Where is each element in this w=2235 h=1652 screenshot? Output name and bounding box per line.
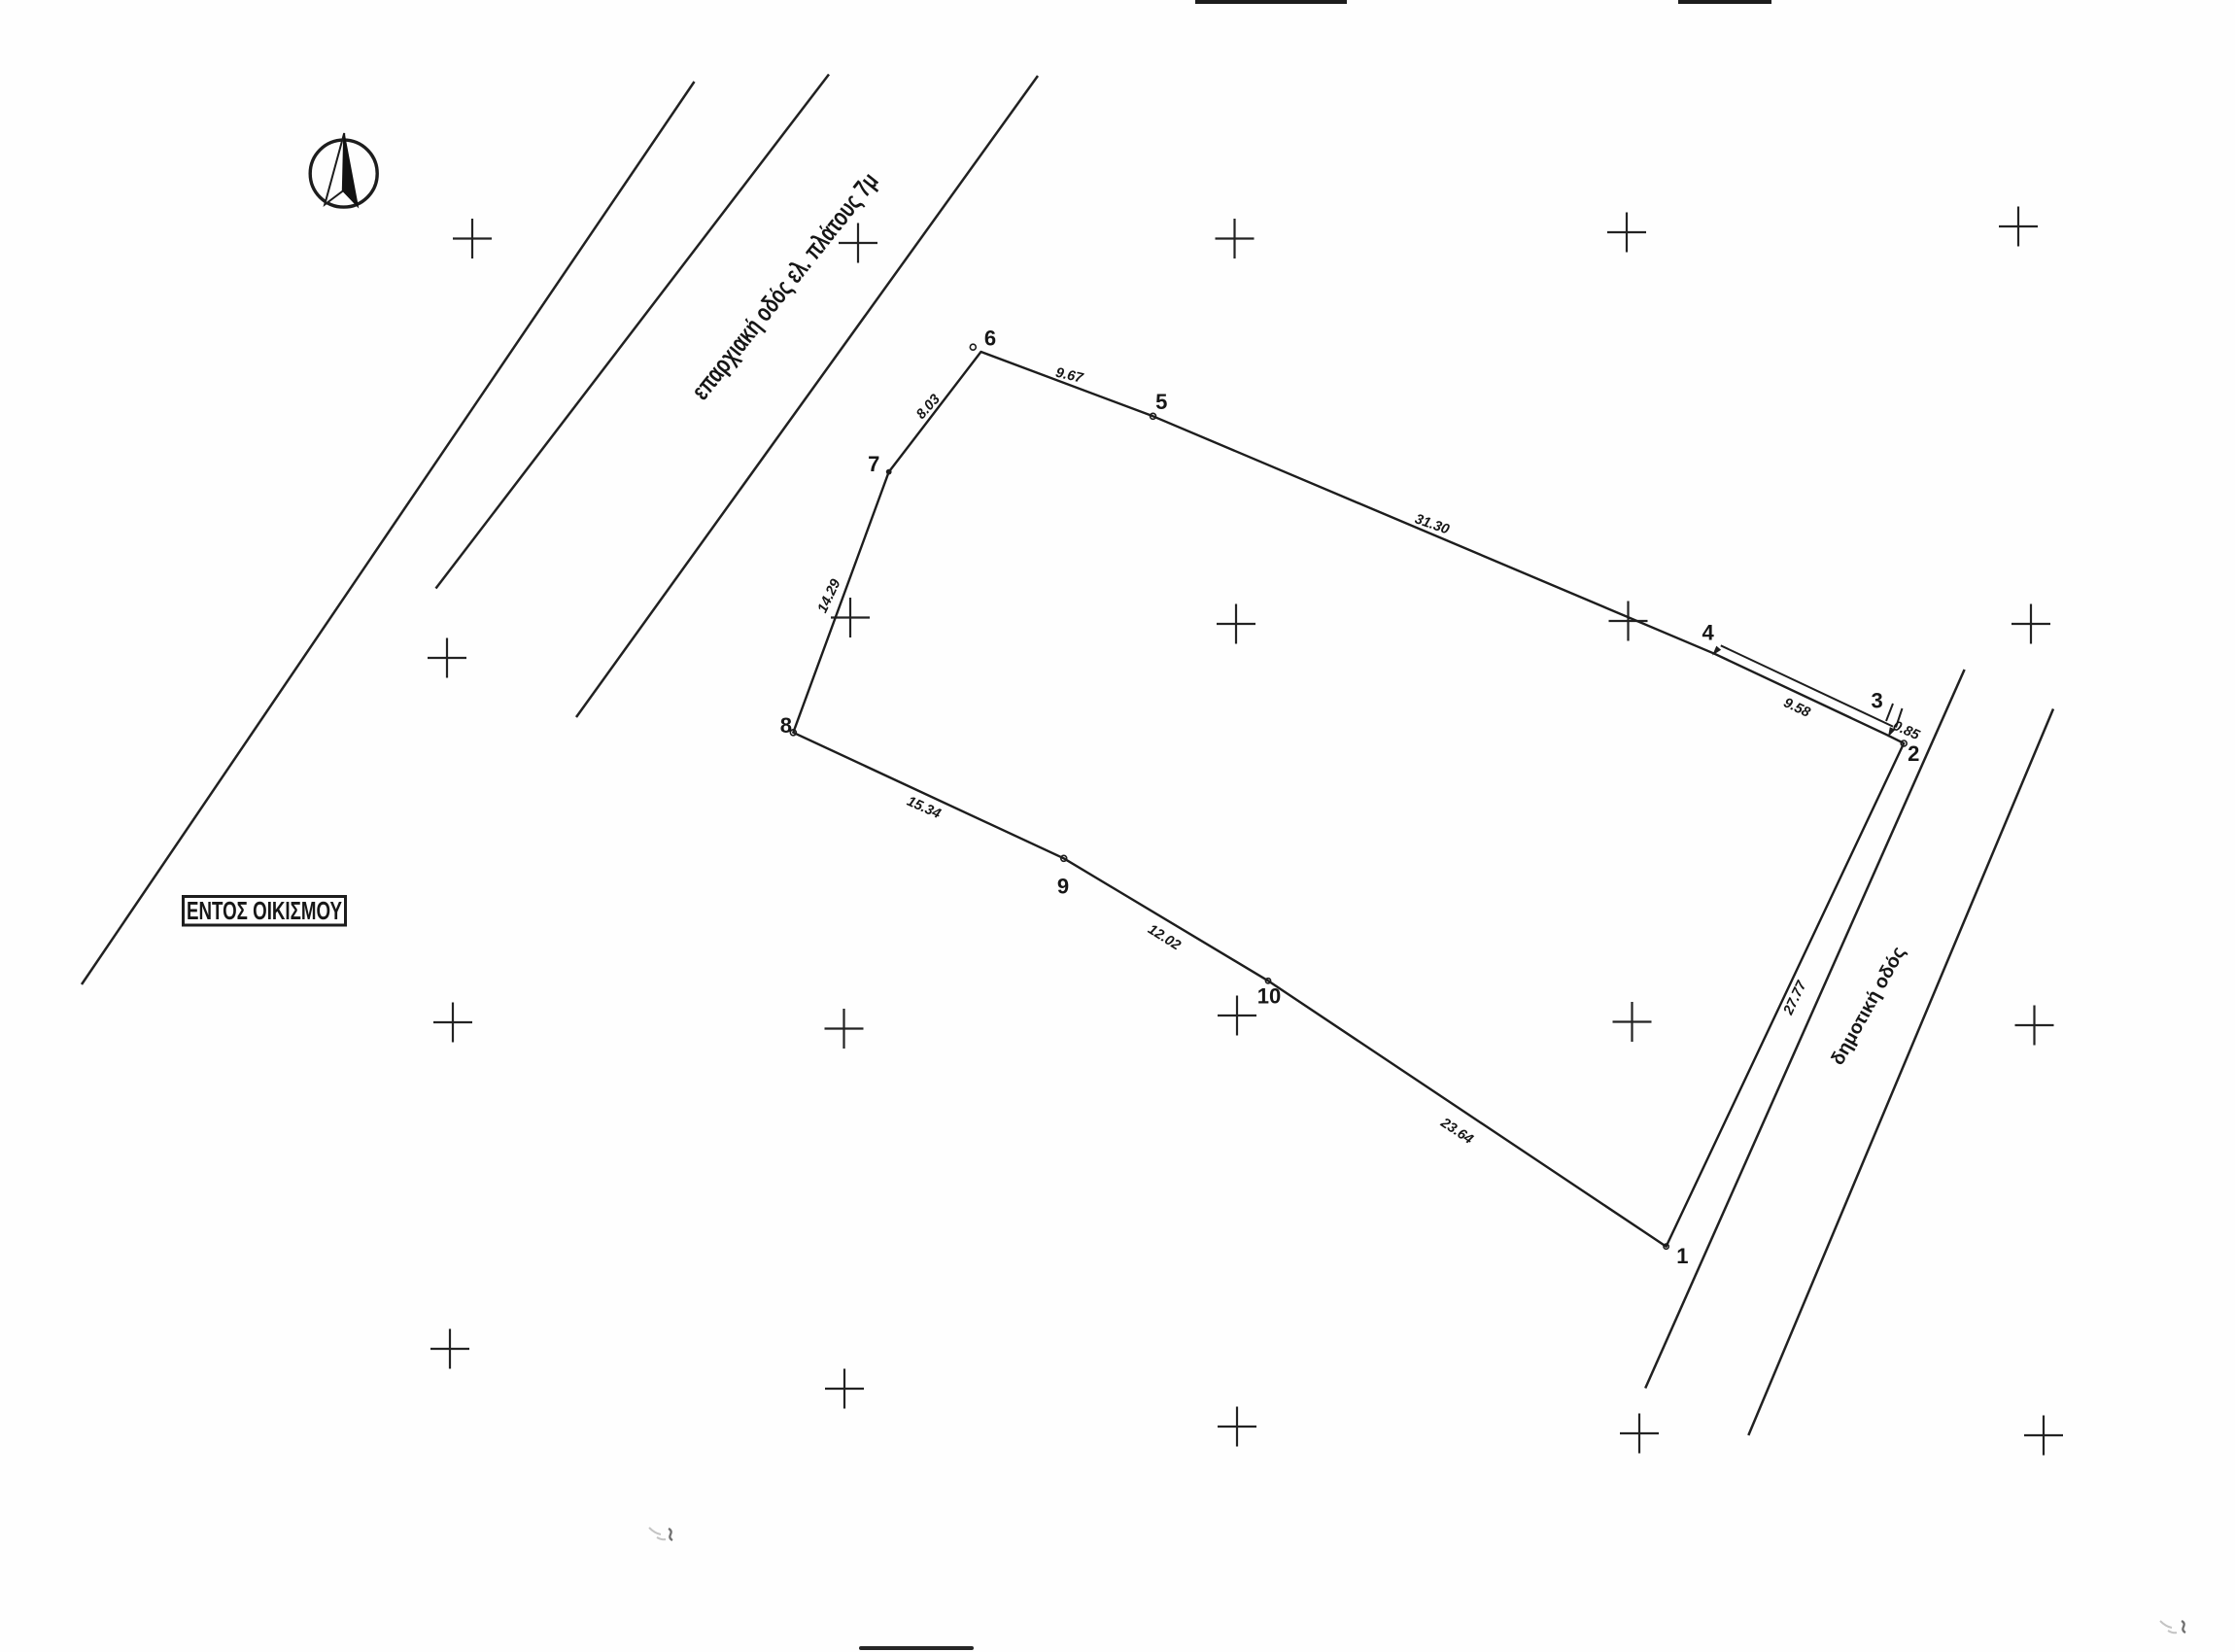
- svg-text:2: 2: [1908, 741, 1919, 766]
- svg-text:10: 10: [1257, 984, 1281, 1009]
- svg-text:4: 4: [1702, 620, 1714, 644]
- svg-text:23.64: 23.64: [1437, 1115, 1476, 1148]
- svg-text:27.77: 27.77: [1780, 978, 1810, 1017]
- svg-text:3: 3: [1871, 689, 1882, 713]
- svg-text:7: 7: [868, 452, 879, 476]
- svg-text:δημοτική οδός: δημοτική οδός: [1827, 943, 1909, 1069]
- svg-text:ΕΝΤΟΣ ΟΙΚΙΣΜΟΥ: ΕΝΤΟΣ ΟΙΚΙΣΜΟΥ: [187, 896, 342, 925]
- svg-text:1: 1: [1676, 1244, 1688, 1268]
- svg-text:15.34: 15.34: [905, 794, 944, 822]
- svg-text:8: 8: [780, 713, 792, 738]
- svg-text:επαρχιακή οδός ελ. πλάτους 7μ: επαρχιακή οδός ελ. πλάτους 7μ: [685, 167, 883, 405]
- svg-text:6: 6: [984, 327, 996, 351]
- svg-text:14.29: 14.29: [815, 577, 844, 616]
- svg-text:9: 9: [1057, 875, 1069, 899]
- svg-text:5: 5: [1155, 390, 1167, 414]
- svg-text:9.67: 9.67: [1054, 365, 1085, 387]
